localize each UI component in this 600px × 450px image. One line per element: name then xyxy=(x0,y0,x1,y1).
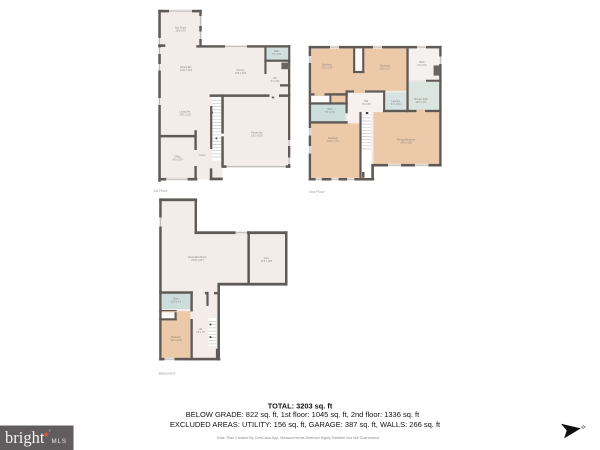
svg-text:MLS: MLS xyxy=(52,438,67,445)
svg-text:2nd Floor: 2nd Floor xyxy=(309,190,325,194)
svg-text:Bedroom12'2 x 17'1: Bedroom12'2 x 17'1 xyxy=(327,137,339,143)
svg-text:Foyer: Foyer xyxy=(199,154,205,157)
svg-text:1st Floor: 1st Floor xyxy=(153,189,168,193)
svg-text:Bedroom11'6 x 12'7: Bedroom11'6 x 12'7 xyxy=(379,65,391,71)
svg-text:Laundry6'1 x 5'11: Laundry6'1 x 5'11 xyxy=(391,100,402,106)
svg-text:Sun Room13'9 x 8'9: Sun Room13'9 x 8'9 xyxy=(175,27,186,33)
svg-text:Living Rm19'5 x 11'5: Living Rm19'5 x 11'5 xyxy=(179,111,191,117)
svg-text:bright: bright xyxy=(5,428,45,447)
svg-text:Primary Bath10'0 x 4'11: Primary Bath10'0 x 4'11 xyxy=(414,98,428,104)
svg-text:®: ® xyxy=(49,429,51,433)
svg-text:Bedroom11'2 x 14'2: Bedroom11'2 x 14'2 xyxy=(321,64,333,70)
svg-text:Bedroom11'2 x 12'6: Bedroom11'2 x 12'6 xyxy=(170,336,182,342)
svg-text:EXCLUDED AREAS: UTILITY: 156 s: EXCLUDED AREAS: UTILITY: 156 sq. ft, GAR… xyxy=(170,420,441,429)
svg-text:BELOW GRADE: 822 sq. ft, 1st f: BELOW GRADE: 822 sq. ft, 1st floor: 1045… xyxy=(186,410,420,419)
svg-text:Dining Rm14'11 x 11'2: Dining Rm14'11 x 11'2 xyxy=(180,66,193,72)
svg-text:Basement: Basement xyxy=(159,372,176,376)
svg-text:Family Rm16'1 x 15'6: Family Rm16'1 x 15'6 xyxy=(251,132,263,138)
svg-text:Note: Plan Created By CubiCasa: Note: Plan Created By CubiCasa App. Meas… xyxy=(217,436,379,440)
svg-text:N: N xyxy=(580,424,587,431)
